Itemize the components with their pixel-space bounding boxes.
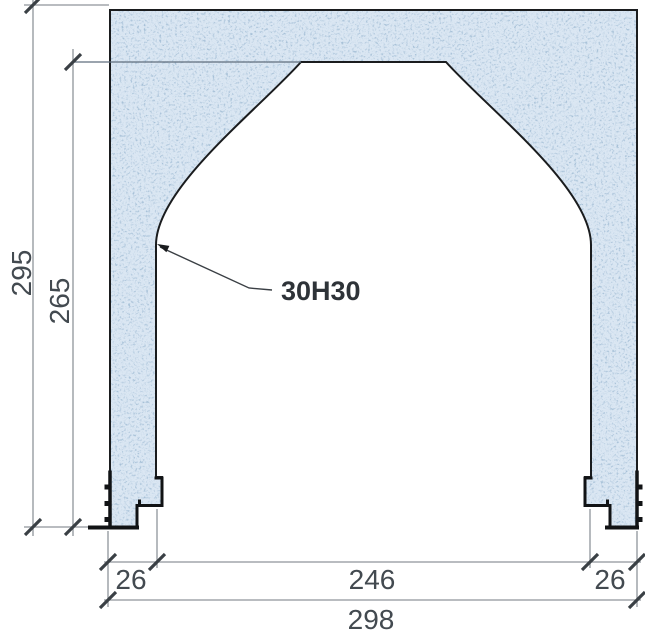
concrete-section [73,10,637,527]
dim-height-total-label: 295 [6,250,37,297]
dim-width-right-label: 26 [594,564,625,595]
dimension-labels: 295 265 26 246 26 298 [6,250,626,633]
dim-width-left-label: 26 [115,564,146,595]
dim-width-total-label: 298 [348,604,395,633]
speckle-texture [110,10,637,527]
dim-width-opening-label: 246 [349,564,396,595]
callout-label: 30H30 [281,276,361,306]
technical-drawing: 295 265 26 246 26 298 30H30 [0,0,645,633]
callout: 30H30 [157,244,361,306]
callout-leader-line [160,247,272,290]
dim-height-opening-label: 265 [44,278,75,325]
technical-drawing-canvas: 295 265 26 246 26 298 30H30 [0,0,645,633]
